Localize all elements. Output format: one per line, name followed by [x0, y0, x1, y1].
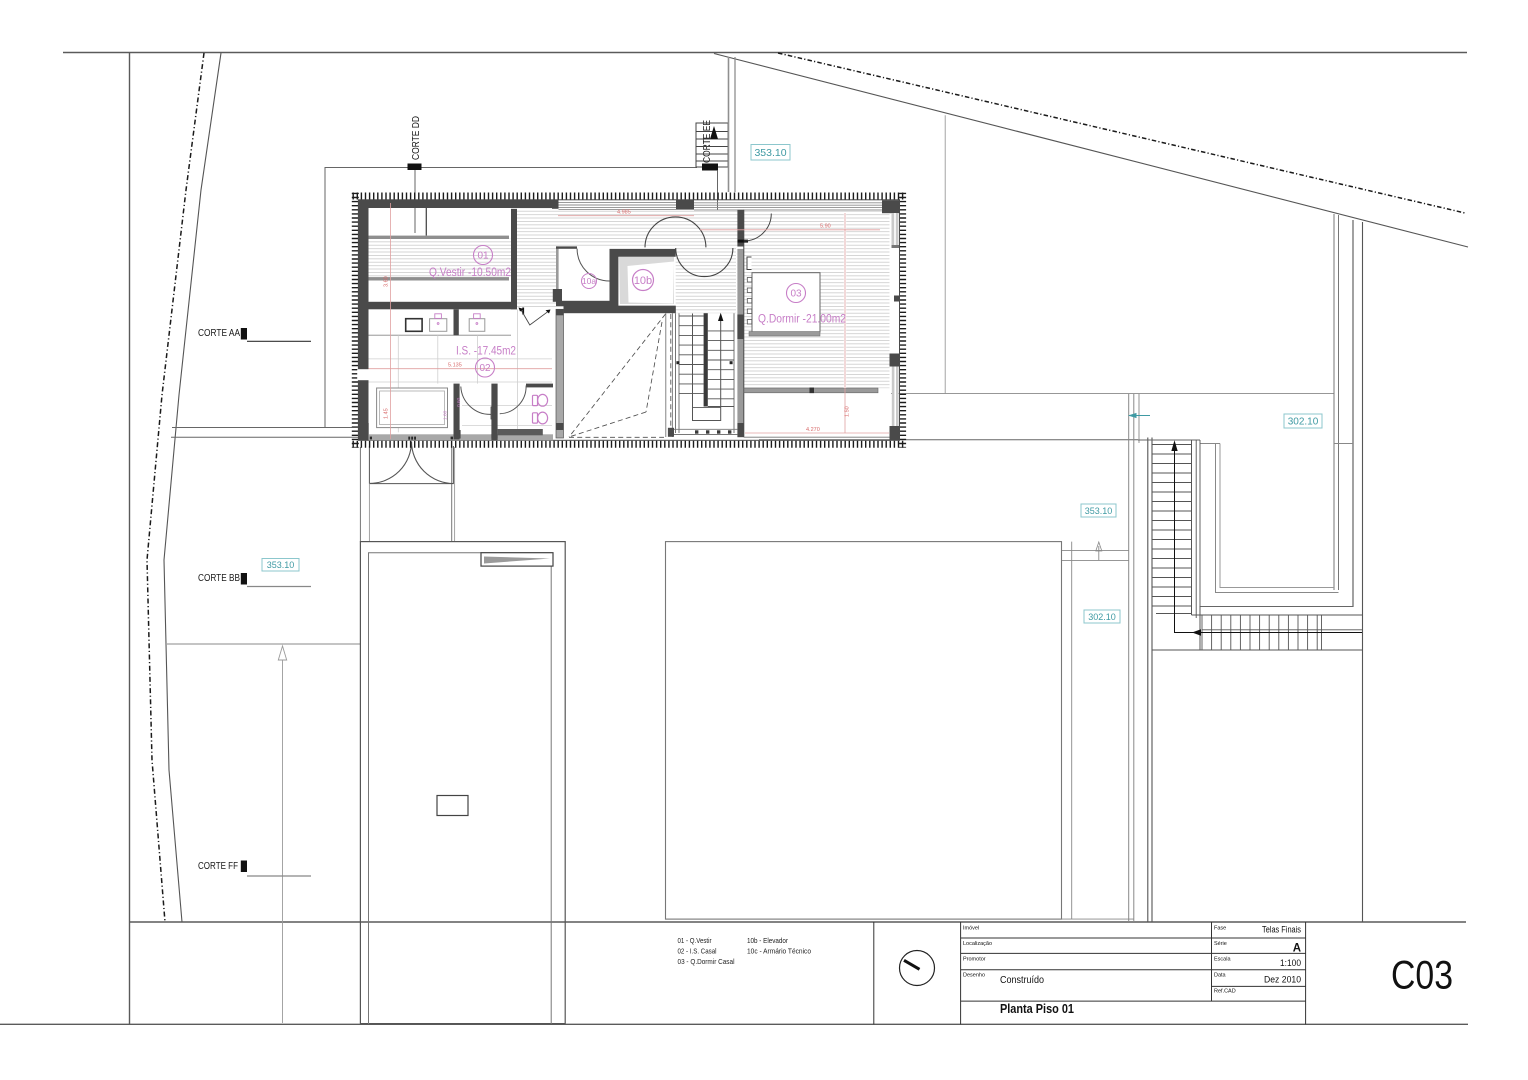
svg-text:Fase: Fase	[1214, 926, 1226, 932]
svg-text:10c - Armário Técnico: 10c - Armário Técnico	[747, 947, 811, 956]
svg-text:353.10: 353.10	[1085, 506, 1113, 516]
svg-text:Telas Finais: Telas Finais	[1262, 925, 1301, 935]
svg-text:5.90: 5.90	[820, 224, 831, 230]
svg-text:302.10: 302.10	[1288, 417, 1319, 428]
svg-text:03: 03	[790, 289, 802, 300]
svg-text:353.10: 353.10	[754, 147, 786, 159]
svg-text:Ref.CAD: Ref.CAD	[1214, 989, 1236, 995]
svg-text:I.S. -17.45m2: I.S. -17.45m2	[456, 346, 516, 358]
svg-text:4.985: 4.985	[617, 210, 631, 216]
svg-text:Construído: Construído	[1000, 975, 1044, 986]
svg-text:Desenho: Desenho	[963, 973, 985, 979]
svg-text:CORTE EE: CORTE EE	[701, 120, 713, 163]
svg-text:Escala: Escala	[1214, 957, 1231, 963]
svg-text:Série: Série	[1214, 941, 1227, 947]
svg-text:4.270: 4.270	[806, 427, 820, 433]
svg-text:5.135: 5.135	[448, 363, 462, 369]
svg-text:C03: C03	[1391, 954, 1453, 998]
svg-text:02 - I.S. Casal: 02 - I.S. Casal	[678, 947, 717, 956]
svg-text:353.10: 353.10	[267, 560, 295, 570]
svg-text:Q.Vestir -10.50m2: Q.Vestir -10.50m2	[429, 267, 511, 279]
svg-text:Data: Data	[1214, 973, 1227, 979]
svg-text:A: A	[1293, 943, 1301, 955]
svg-text:10b - Elevador: 10b - Elevador	[747, 936, 788, 945]
svg-text:Promotor: Promotor	[963, 957, 986, 963]
svg-text:1.50: 1.50	[845, 406, 851, 417]
svg-text:CORTE DD: CORTE DD	[410, 116, 422, 160]
svg-text:CORTE FF: CORTE FF	[198, 860, 238, 872]
svg-text:302.10: 302.10	[1088, 612, 1116, 622]
svg-text:01 - Q.Vestir: 01 - Q.Vestir	[678, 936, 712, 945]
svg-text:Dez 2010: Dez 2010	[1264, 975, 1301, 985]
svg-text:Localização: Localização	[963, 941, 992, 947]
svg-text:03 - Q.Dormir Casal: 03 - Q.Dormir Casal	[678, 957, 735, 966]
svg-text:Planta Piso 01: Planta Piso 01	[1000, 1001, 1074, 1016]
svg-text:CORTE BB: CORTE BB	[198, 572, 240, 584]
svg-text:01: 01	[477, 251, 489, 262]
svg-text:Imóvel: Imóvel	[963, 926, 979, 932]
svg-text:02: 02	[479, 363, 491, 374]
svg-text:CORTE AA: CORTE AA	[198, 327, 240, 339]
svg-text:0.60: 0.60	[456, 397, 462, 407]
svg-text:1:100: 1:100	[1280, 958, 1301, 968]
svg-text:3.60: 3.60	[384, 276, 390, 287]
svg-text:10b: 10b	[634, 275, 652, 287]
svg-text:1.60: 1.60	[443, 410, 449, 420]
svg-text:1.45: 1.45	[384, 408, 390, 419]
svg-text:10a: 10a	[582, 276, 596, 286]
svg-text:Q.Dormir -21.00m2: Q.Dormir -21.00m2	[758, 314, 846, 326]
